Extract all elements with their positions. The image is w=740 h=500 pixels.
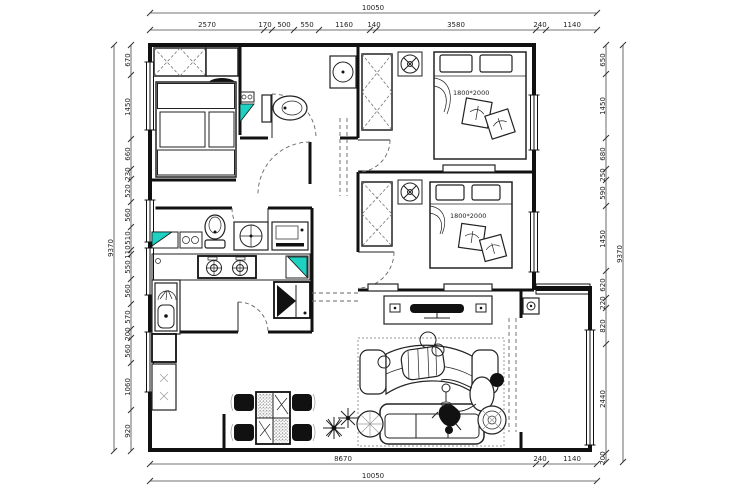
dim-top-seg-0: 2570 xyxy=(198,21,216,29)
dim-top-seg-2: 500 xyxy=(277,21,290,29)
dimension-top: 10050 2570 170 500 550 1160 140 3580 240… xyxy=(147,4,600,33)
bed1 xyxy=(434,52,526,159)
dim-bottom-seg-1: 240 xyxy=(533,455,546,463)
dining-table xyxy=(256,392,290,444)
bed2 xyxy=(430,182,512,268)
appliance-bath2 xyxy=(272,222,308,250)
kitchen-furniture xyxy=(152,254,310,334)
floor-plan-canvas: 10050 2570 170 500 550 1160 140 3580 240… xyxy=(0,0,740,500)
dim-left-seg-1: 1450 xyxy=(124,98,132,116)
floor-plan-page: 10050 2570 170 500 550 1160 140 3580 240… xyxy=(0,0,740,500)
bathroom-2-fixtures xyxy=(152,215,308,250)
window-balcony xyxy=(585,330,596,445)
bed1-size-label: 1800*2000 xyxy=(453,89,489,97)
dim-top-seg-8: 1140 xyxy=(563,21,581,29)
dimension-bottom: 8670 240 1140 10050 xyxy=(147,455,600,484)
dim-left-seg-3: 230 xyxy=(124,167,132,180)
plant-living xyxy=(338,408,358,428)
bedroom-2-furniture: 1800*2000 xyxy=(362,180,512,291)
wardrobe-left xyxy=(154,48,206,76)
dim-left-seg-5: 560 xyxy=(124,208,132,221)
dim-left-seg-7: 110 xyxy=(124,245,132,258)
dim-right-total: 9370 xyxy=(616,245,624,263)
bed-textured xyxy=(156,82,236,177)
kitchen-sink xyxy=(152,280,180,334)
knob-unit xyxy=(180,232,202,248)
dim-bottom-seg-2: 1140 xyxy=(563,455,581,463)
bed2-size-label: 1800*2000 xyxy=(450,212,486,220)
pouf-right xyxy=(478,406,506,434)
toilet-top xyxy=(262,95,307,122)
toilet-bath2 xyxy=(205,215,225,248)
cabinet-dining-2 xyxy=(152,364,176,410)
dining-furniture xyxy=(152,334,345,444)
floor-lamp xyxy=(441,384,451,406)
dim-left-seg-11: 200 xyxy=(124,327,132,340)
dim-right-seg-10: 200 xyxy=(599,451,607,464)
dim-left-seg-8: 550 xyxy=(124,260,132,273)
dim-right-seg-2: 680 xyxy=(599,147,607,160)
dim-left-total: 9370 xyxy=(107,239,115,257)
dim-left-seg-12: 560 xyxy=(124,344,132,357)
dim-left-seg-10: 570 xyxy=(124,310,132,323)
washbasin-top xyxy=(330,56,356,88)
dim-top-total: 10050 xyxy=(362,4,384,12)
dim-right-seg-9: 2440 xyxy=(599,390,607,408)
dim-left-seg-9: 560 xyxy=(124,284,132,297)
window-bedroom2 xyxy=(529,212,540,272)
dim-left-seg-6: 510 xyxy=(124,231,132,244)
dimension-right: 9370 650 1450 680 250 590 1450 620 220 8… xyxy=(599,42,626,465)
dim-top-seg-3: 550 xyxy=(300,21,313,29)
ceiling-fan-bed2 xyxy=(398,180,422,204)
sink-teal-bath2 xyxy=(152,232,178,248)
dim-bottom-seg-0: 8670 xyxy=(334,455,352,463)
window-bedroom1 xyxy=(529,95,540,150)
sofa-bottom xyxy=(380,404,484,444)
sink-teal-top xyxy=(240,92,254,122)
dim-top-seg-5: 140 xyxy=(367,21,380,29)
dim-top-seg-7: 240 xyxy=(533,21,546,29)
dim-left-seg-13: 1060 xyxy=(124,378,132,396)
dim-top-seg-4: 1160 xyxy=(335,21,353,29)
corner-teal-kitchen xyxy=(286,256,308,278)
wardrobe-bed2 xyxy=(362,182,392,246)
dim-right-seg-3: 250 xyxy=(599,168,607,181)
dim-top-seg-1: 170 xyxy=(258,21,271,29)
dim-bottom-total: 10050 xyxy=(362,472,384,480)
dim-right-seg-6: 620 xyxy=(599,278,607,291)
cabinet-wall-1 xyxy=(368,284,398,291)
washbasin-bath2 xyxy=(234,222,268,250)
dresser-bed1 xyxy=(443,165,495,172)
dim-right-seg-5: 1450 xyxy=(599,230,607,248)
tv-console xyxy=(384,296,492,324)
wardrobe-bed1 xyxy=(362,54,392,130)
fridge xyxy=(274,282,310,318)
living-room-furniture xyxy=(338,296,506,446)
dim-right-seg-4: 590 xyxy=(599,186,607,199)
dimension-left: 9370 670 1450 660 230 520 560 510 110 55… xyxy=(107,42,134,454)
dim-left-seg-2: 660 xyxy=(124,147,132,160)
balcony-furniture xyxy=(523,298,539,314)
gas-stove xyxy=(198,256,256,278)
dim-left-seg-4: 520 xyxy=(124,184,132,197)
dim-left-seg-0: 670 xyxy=(124,53,132,66)
dim-right-seg-8: 820 xyxy=(599,319,607,332)
blanket xyxy=(400,345,446,381)
ceiling-fan-bed1 xyxy=(398,52,422,76)
dim-left-seg-14: 920 xyxy=(124,424,132,437)
dim-right-seg-0: 650 xyxy=(599,53,607,66)
bedroom-left-furniture xyxy=(154,48,238,177)
pouf-left xyxy=(357,411,383,437)
bathroom-top-fixtures xyxy=(240,56,356,122)
cabinet-wall-2 xyxy=(444,284,492,291)
dim-right-seg-7: 220 xyxy=(599,296,607,309)
dim-top-seg-6: 3580 xyxy=(447,21,465,29)
dim-right-seg-1: 1450 xyxy=(599,97,607,115)
nightstand xyxy=(206,48,238,76)
cabinet-dining-1 xyxy=(152,334,176,362)
plant-dining xyxy=(323,417,345,439)
